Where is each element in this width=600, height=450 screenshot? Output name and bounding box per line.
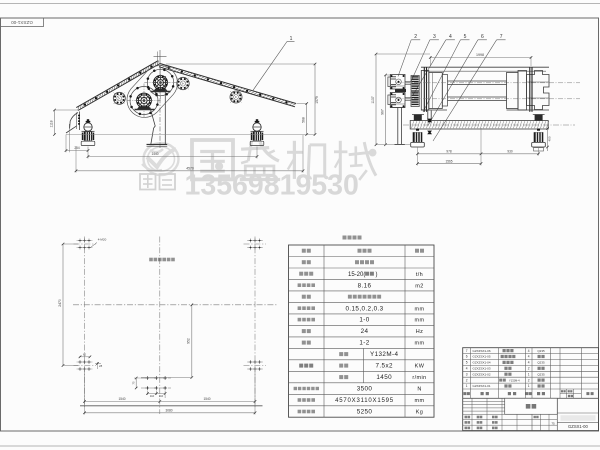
svg-text:5: 5	[464, 34, 467, 40]
svg-text:4: 4	[449, 34, 452, 40]
svg-text:4570X3110X1595: 4570X3110X1595	[335, 398, 394, 404]
svg-text:Q235: Q235	[537, 349, 545, 353]
svg-text:110: 110	[159, 394, 164, 398]
svg-text:1540: 1540	[118, 397, 125, 401]
svg-text:2: 2	[528, 378, 530, 382]
svg-text:GZXZSX1-01: GZXZSX1-01	[473, 384, 491, 388]
svg-text:GZSX1-00: GZSX1-00	[11, 20, 33, 25]
svg-text:Y132M-4: Y132M-4	[370, 351, 398, 358]
svg-text:GZSX1-00: GZSX1-00	[568, 424, 588, 429]
svg-text:mm: mm	[415, 341, 425, 347]
svg-text:400: 400	[548, 136, 552, 141]
svg-text:4: 4	[528, 349, 530, 353]
svg-text:r/min: r/min	[412, 375, 426, 381]
svg-text:0.15,0.2,0.3: 0.15,0.2,0.3	[345, 305, 383, 312]
svg-text:KW: KW	[415, 364, 425, 370]
svg-text:1565: 1565	[445, 159, 452, 163]
svg-text:1440: 1440	[151, 152, 158, 156]
svg-text:6: 6	[481, 34, 484, 40]
svg-text:2: 2	[414, 34, 417, 40]
svg-text:8.16: 8.16	[358, 282, 372, 289]
svg-text:1998: 1998	[476, 53, 484, 57]
svg-text:Q235: Q235	[537, 361, 545, 365]
svg-text:4: 4	[528, 361, 530, 365]
svg-text:GZXZSX1-03: GZXZSX1-03	[473, 367, 491, 371]
svg-text:): )	[376, 272, 378, 278]
svg-text:1450: 1450	[376, 374, 392, 381]
svg-text:254: 254	[74, 146, 80, 150]
svg-text:3500: 3500	[357, 386, 373, 393]
svg-text:1-2: 1-2	[359, 340, 369, 347]
svg-text:28: 28	[99, 364, 103, 368]
svg-text:568: 568	[302, 117, 306, 123]
svg-text:7.5x2: 7.5x2	[375, 363, 393, 370]
svg-text:75: 75	[551, 422, 555, 426]
svg-text:t/h: t/h	[416, 272, 423, 278]
svg-text:1540: 1540	[203, 397, 210, 401]
svg-text:1118: 1118	[49, 120, 53, 127]
svg-text:1: 1	[528, 372, 530, 376]
svg-text:Y132M-4: Y132M-4	[509, 378, 520, 382]
svg-text:7: 7	[466, 349, 468, 353]
svg-text:3: 3	[466, 372, 468, 376]
svg-text:1: 1	[466, 384, 468, 388]
svg-text:2: 2	[528, 367, 530, 371]
svg-text:GZXZSX1-04: GZXZSX1-04	[473, 361, 491, 365]
svg-text:7: 7	[500, 34, 503, 40]
svg-text:1: 1	[528, 384, 530, 388]
svg-text:930: 930	[507, 150, 513, 154]
svg-text:24: 24	[361, 328, 369, 335]
svg-text:2: 2	[466, 378, 468, 382]
svg-text:4: 4	[528, 355, 530, 359]
svg-text:1: 1	[290, 36, 293, 42]
svg-text:Hz: Hz	[416, 329, 424, 335]
svg-text:Q235: Q235	[537, 372, 545, 376]
svg-text:4: 4	[466, 367, 468, 371]
svg-text:GZXZSX1-06: GZXZSX1-06	[473, 349, 491, 353]
svg-text:1579: 1579	[315, 96, 319, 104]
svg-text:5250: 5250	[357, 409, 373, 416]
svg-text:1-0: 1-0	[359, 317, 369, 324]
svg-text:75: 75	[132, 381, 136, 385]
svg-text:mm: mm	[415, 398, 425, 404]
svg-text:GZXZSX1-02: GZXZSX1-02	[473, 372, 491, 376]
svg-text:GZXZSX1-05: GZXZSX1-05	[473, 355, 491, 359]
svg-text:N: N	[417, 387, 421, 393]
svg-text:4-M20: 4-M20	[98, 238, 107, 242]
svg-text:3: 3	[433, 34, 436, 40]
svg-text:110: 110	[150, 394, 155, 398]
svg-text:mm: mm	[415, 306, 425, 312]
svg-text:Kg: Kg	[416, 410, 424, 416]
svg-text:3080: 3080	[165, 408, 172, 412]
svg-text:978: 978	[446, 150, 452, 154]
svg-text:60: 60	[83, 352, 87, 356]
svg-text:952: 952	[187, 338, 191, 344]
svg-text:15-20(: 15-20(	[348, 272, 365, 278]
svg-text:4570: 4570	[186, 166, 194, 170]
svg-text:13569819530: 13569819530	[185, 170, 359, 202]
svg-text:6: 6	[466, 355, 468, 359]
svg-text:m2: m2	[415, 283, 423, 289]
svg-text:5: 5	[466, 361, 468, 365]
svg-text:1137: 1137	[371, 96, 375, 103]
svg-text:967: 967	[380, 109, 384, 115]
svg-text:2470: 2470	[58, 299, 62, 307]
svg-text:mm: mm	[415, 318, 425, 324]
